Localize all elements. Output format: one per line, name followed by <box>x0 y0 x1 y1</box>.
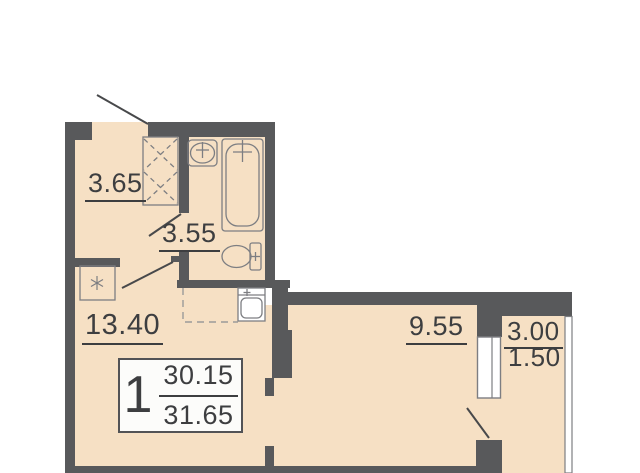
bathtub-icon <box>222 139 263 231</box>
niche-dashed-outline <box>183 288 238 322</box>
balcony-window <box>478 337 501 398</box>
balcony-door-swing <box>467 408 489 438</box>
living-kitchen-area-label: 13.40 <box>82 311 163 345</box>
apartment-areas: 30.15 31.65 <box>159 360 237 431</box>
apartment-number: 1 <box>124 369 153 421</box>
entry-door-swing <box>97 95 148 124</box>
apartment-area-main: 30.15 <box>159 360 237 397</box>
balcony-glazing <box>565 317 572 473</box>
balcony-reduced-area-label: 1.50 <box>508 344 561 370</box>
entry-area-label: 3.65 <box>85 170 146 202</box>
sink-icon <box>188 140 217 166</box>
apartment-area-total: 31.65 <box>163 397 233 431</box>
hall-living-door-swing <box>122 262 173 288</box>
hall-area-label: 3.55 <box>159 220 220 252</box>
toilet-icon <box>222 243 261 270</box>
stove-icon <box>80 266 115 300</box>
bedroom-area-label: 9.55 <box>406 313 467 345</box>
floor-plan: 3.65 3.55 13.40 9.55 3.00 1.50 1 30.15 3… <box>0 0 640 473</box>
washing-machine-icon <box>238 288 265 321</box>
wardrobe-symbol <box>143 137 178 205</box>
fixtures-overlay <box>0 0 640 473</box>
apartment-stamp: 1 30.15 31.65 <box>118 358 243 433</box>
